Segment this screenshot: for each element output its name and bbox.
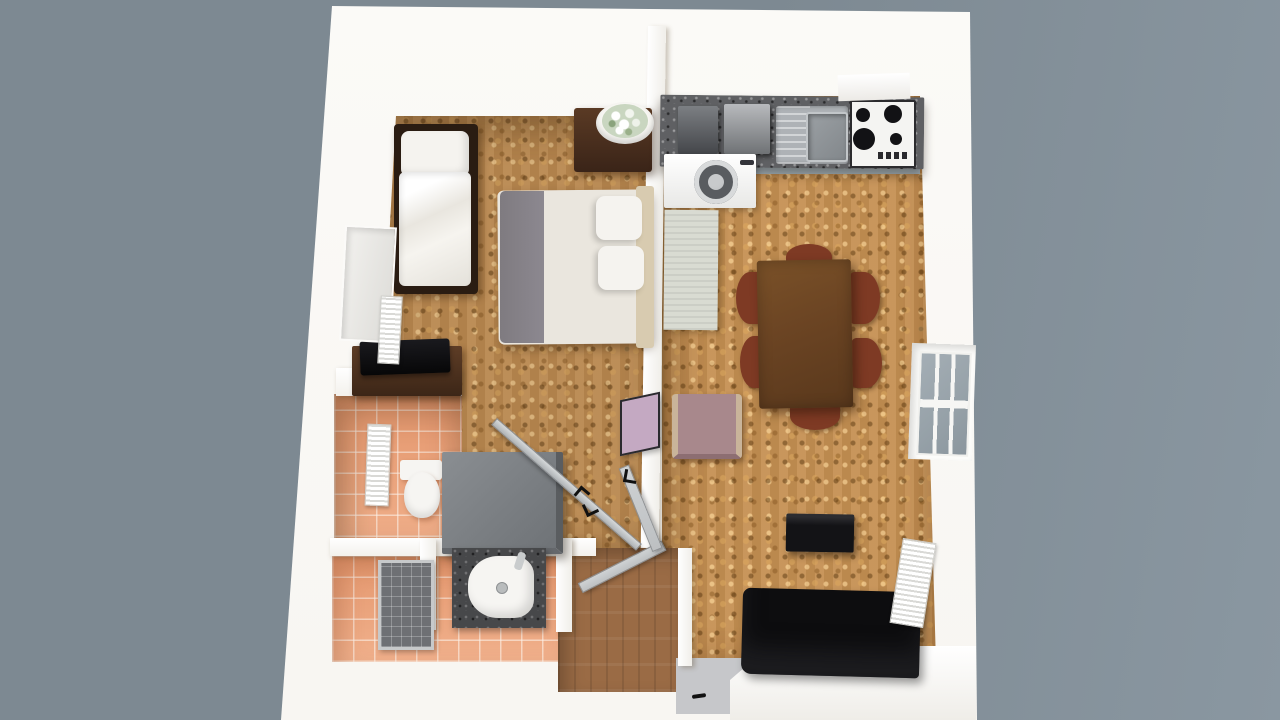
door-handle-2 xyxy=(623,469,638,484)
sink-basin xyxy=(806,112,848,162)
double-bed-runner xyxy=(500,191,544,343)
mirror-panel xyxy=(620,392,660,457)
double-bed-pillow-top xyxy=(596,196,642,240)
hob-knobs xyxy=(878,152,910,159)
single-bed-pillow xyxy=(401,131,469,177)
apartment-render-scene xyxy=(0,0,1280,720)
flowers xyxy=(602,104,648,138)
double-bed-pillow-bottom xyxy=(598,246,644,290)
dining-table xyxy=(757,259,854,409)
armchair xyxy=(672,394,742,459)
hob-burner-bl xyxy=(853,128,875,150)
hob-burner-tr xyxy=(884,105,902,123)
washer-door xyxy=(694,160,738,204)
tall-cabinet xyxy=(663,210,718,330)
bathroom-radiator xyxy=(365,424,392,507)
dining-chair-right-1 xyxy=(848,272,880,324)
microwave-appliance xyxy=(724,104,770,154)
living-window-glazing xyxy=(916,351,972,457)
bedroom-radiator xyxy=(377,295,403,364)
toilet-bowl xyxy=(404,472,440,518)
single-bed-duvet xyxy=(399,172,471,286)
dining-chair-right-2 xyxy=(850,338,882,388)
top-window-recess xyxy=(838,73,911,101)
hall-right-wall xyxy=(678,548,692,666)
bread-bin-appliance xyxy=(678,106,718,154)
shower-tray xyxy=(378,560,434,650)
laptop xyxy=(359,338,450,375)
hob-burner-br xyxy=(890,133,902,145)
tv xyxy=(786,513,855,552)
washer-controls xyxy=(740,160,754,165)
basin-drain xyxy=(496,582,508,594)
hob-burner-tl xyxy=(856,108,870,122)
